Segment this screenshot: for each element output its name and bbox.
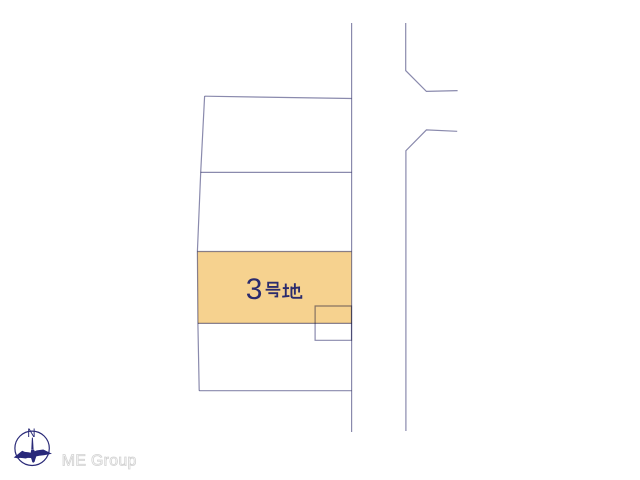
svg-text:3: 3 bbox=[246, 273, 263, 306]
svg-text:ME Group: ME Group bbox=[62, 453, 137, 470]
svg-text:N: N bbox=[27, 428, 35, 440]
